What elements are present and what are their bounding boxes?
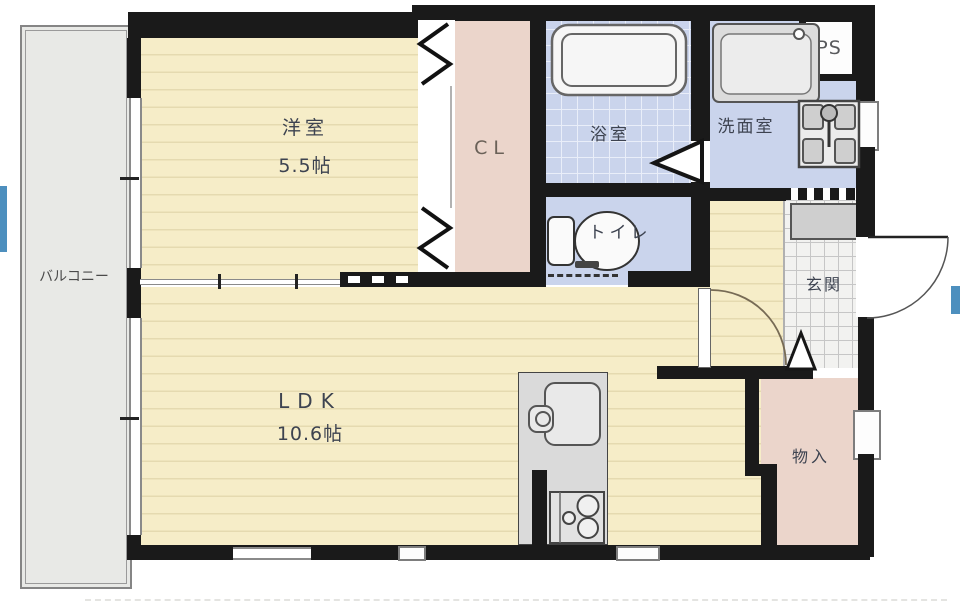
window-storage <box>853 410 881 460</box>
window-bottom-small-2 <box>616 546 660 561</box>
washroom-label: 洗面室 <box>676 118 816 137</box>
kitchen-sink-icon <box>525 378 605 453</box>
bottom-guide-line <box>85 599 947 601</box>
sliding-tick-2 <box>295 274 298 289</box>
step-marker-icon <box>784 330 818 372</box>
entrance-label: 玄関 <box>785 276 863 294</box>
balcony-label: バルコニー <box>22 270 126 285</box>
balcony-inner-line <box>25 30 127 584</box>
shoe-cabinet <box>790 203 864 240</box>
wall-left-stub-3 <box>127 535 141 560</box>
wall-washroom-bottom <box>691 188 786 201</box>
wall-left-stub-2 <box>127 268 141 318</box>
wall-right-1 <box>856 10 875 103</box>
wall-closet-right <box>530 19 546 287</box>
storage-label: 物入 <box>766 448 856 466</box>
wall-closet-bottom <box>415 272 545 287</box>
wall-storage-left-upper <box>745 366 759 476</box>
entrance-threshold-stripes <box>782 188 862 200</box>
sliding-tick-1 <box>218 274 221 289</box>
left-edge-accent <box>0 186 7 252</box>
wall-storage-left-lower <box>761 464 777 551</box>
sliding-rail-slot-1 <box>348 276 360 283</box>
window-western-room <box>129 98 142 268</box>
wall-right-3 <box>858 316 874 412</box>
ldk-size-label: 10.6帖 <box>230 424 390 445</box>
toilet-label: トイレ <box>560 224 680 243</box>
wall-right-4 <box>858 454 874 557</box>
vanity-icon <box>711 22 821 104</box>
window-bottom-wide <box>233 547 311 560</box>
window-ldk <box>129 318 142 535</box>
western-room-size-label: 5.5帖 <box>230 156 380 177</box>
kitchen-stove-icon <box>548 490 606 545</box>
western-room-label: 洋室 <box>230 118 380 139</box>
ldk-label: LDK <box>230 390 390 412</box>
balcony <box>20 25 132 589</box>
wall-left-stub-1 <box>127 38 141 98</box>
bathroom-label: 浴室 <box>550 126 670 145</box>
bathtub-icon <box>549 22 689 98</box>
closet-accordion-icon <box>414 18 456 274</box>
sliding-rail-slot-3 <box>396 276 408 283</box>
wall-top-right <box>412 5 875 21</box>
hall-door-arc <box>655 240 795 375</box>
window-tick-2 <box>120 417 139 420</box>
sliding-partition <box>140 279 340 285</box>
sliding-rail-slot-2 <box>372 276 384 283</box>
floor-plan: バルコニー PS <box>0 0 960 608</box>
wall-kitchen-stub <box>532 470 547 547</box>
closet-label: CL <box>452 138 532 159</box>
window-tick-1 <box>120 177 139 180</box>
window-bottom-small-1 <box>398 546 426 561</box>
entrance-door-arc <box>860 230 955 325</box>
wall-top-left <box>128 12 420 38</box>
